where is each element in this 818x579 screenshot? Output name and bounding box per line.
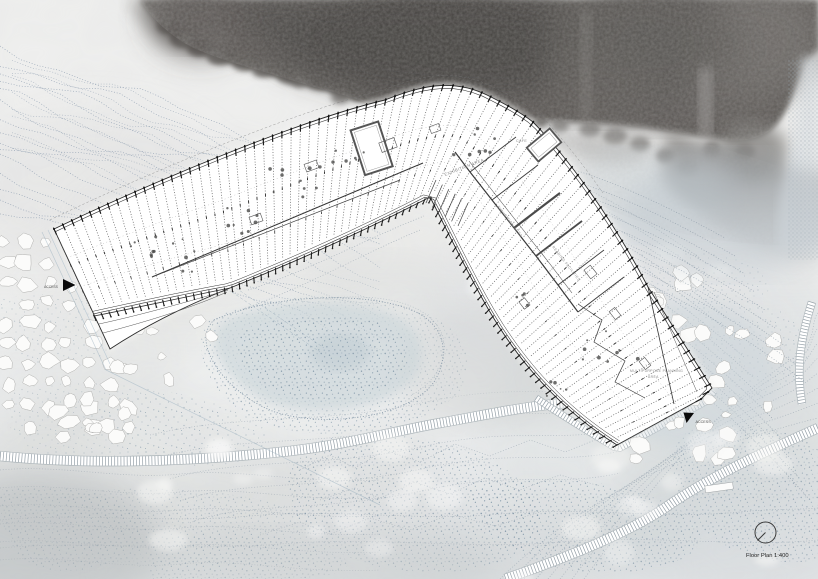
svg-text:AREA: AREA	[648, 375, 659, 379]
svg-text:ACCESS: ACCESS	[696, 420, 712, 424]
svg-text:MULTIPURPOSE PLANNING: MULTIPURPOSE PLANNING	[630, 369, 683, 373]
svg-text:ACCESS: ACCESS	[44, 285, 59, 289]
svg-text:Floor Plan 1:400: Floor Plan 1:400	[746, 553, 789, 559]
svg-text:CAFE: CAFE	[516, 139, 527, 143]
